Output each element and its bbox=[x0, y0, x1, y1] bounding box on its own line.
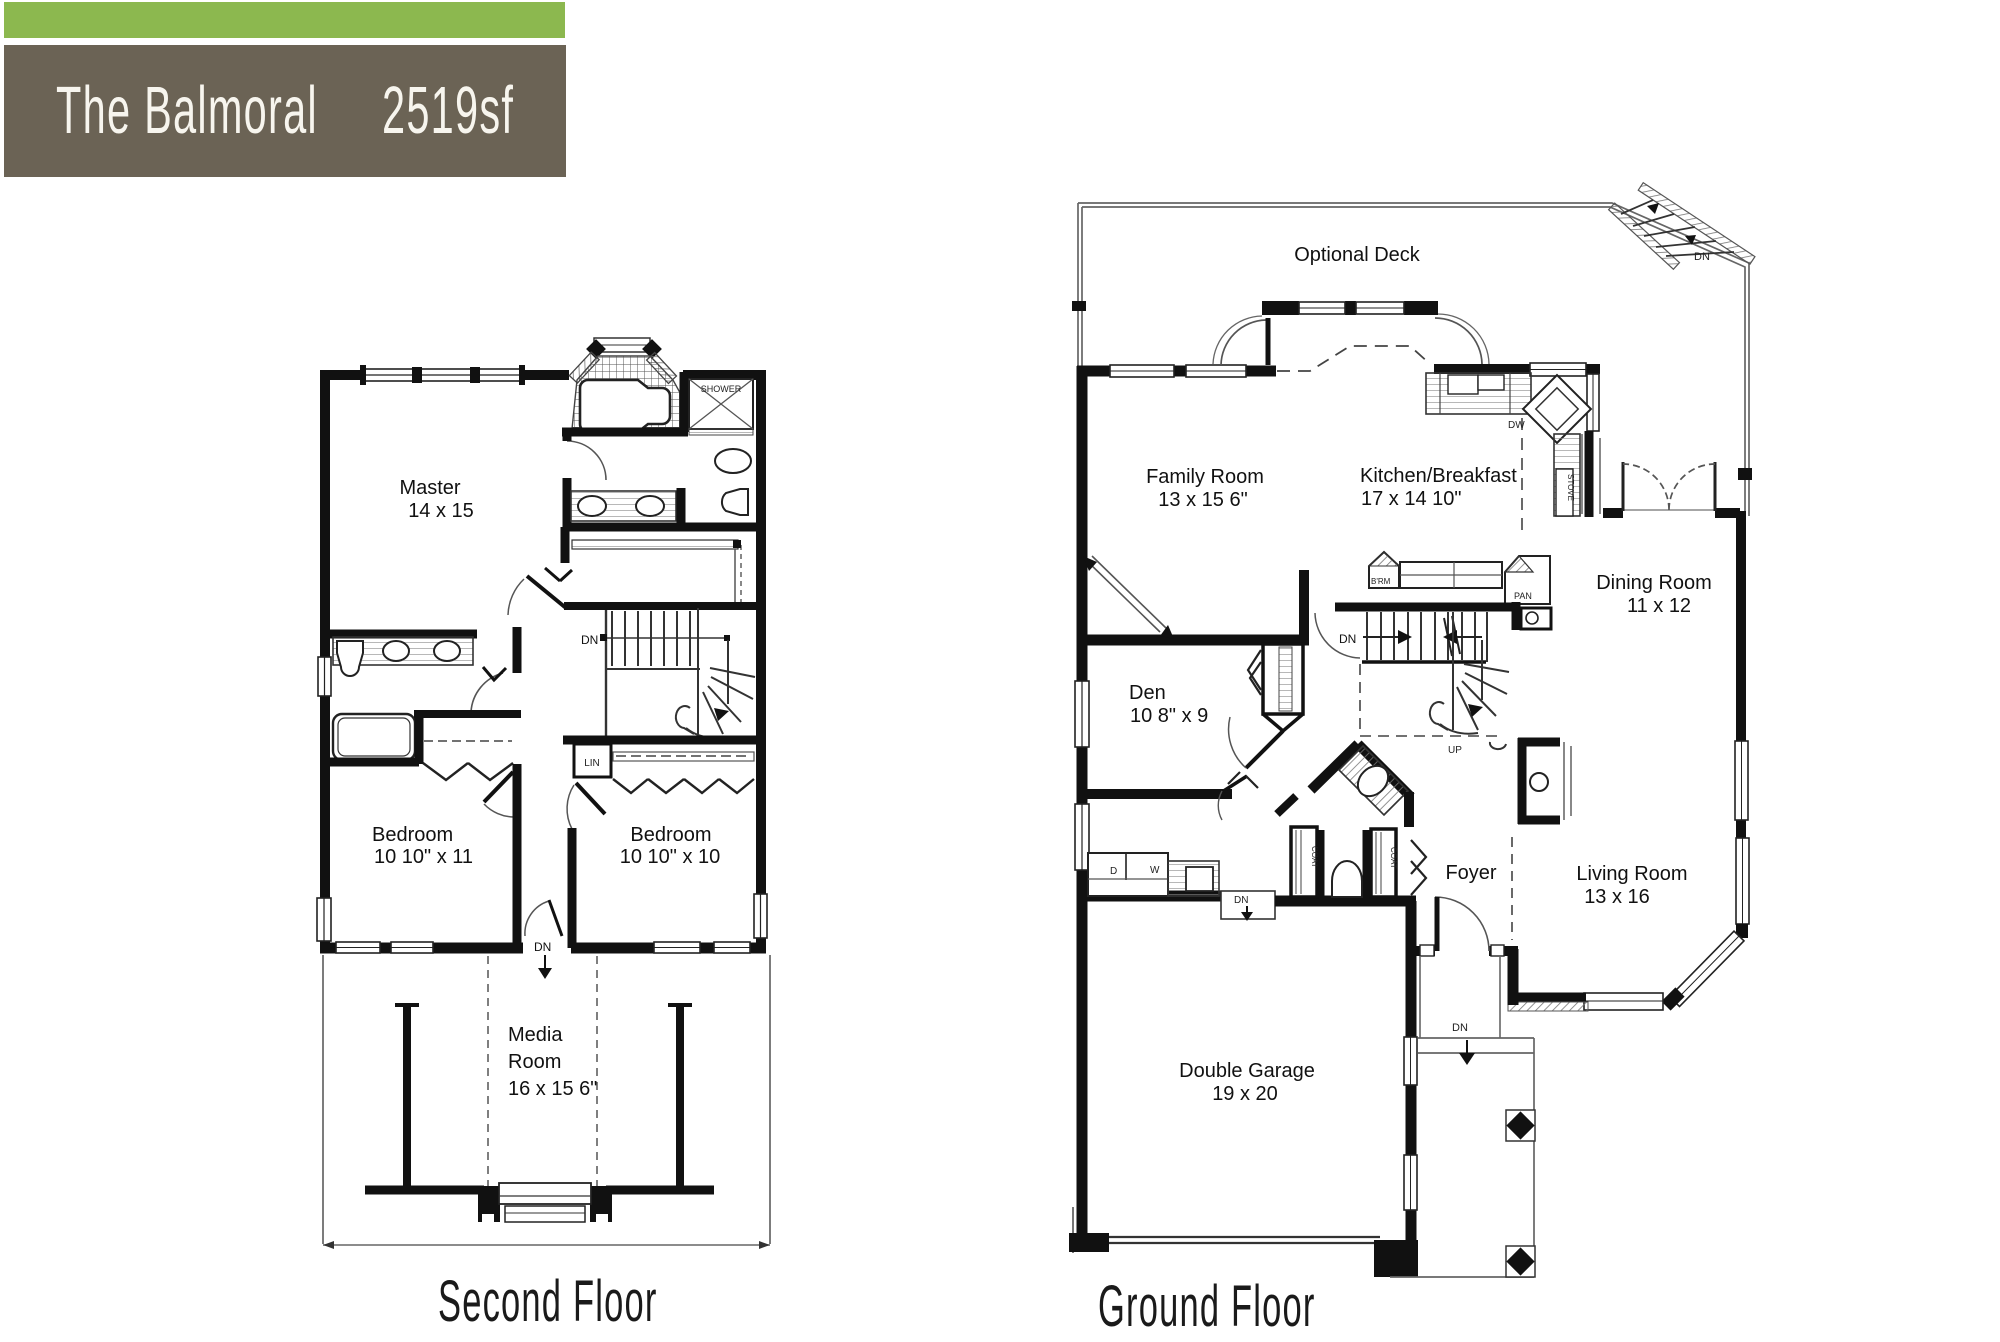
svg-text:Bedroom: Bedroom bbox=[630, 824, 711, 846]
svg-text:LIN: LIN bbox=[584, 758, 600, 769]
svg-text:Family Room: Family Room bbox=[1146, 466, 1264, 488]
svg-text:Room: Room bbox=[508, 1051, 561, 1073]
svg-text:The Balmoral: The Balmoral bbox=[56, 73, 318, 148]
svg-text:Double Garage: Double Garage bbox=[1179, 1060, 1315, 1082]
svg-text:DN: DN bbox=[1339, 632, 1356, 646]
svg-text:Media: Media bbox=[508, 1024, 563, 1046]
svg-text:B'RM: B'RM bbox=[1371, 577, 1391, 586]
svg-text:16 x 15 6": 16 x 15 6" bbox=[508, 1078, 597, 1100]
svg-text:Kitchen/Breakfast: Kitchen/Breakfast bbox=[1360, 465, 1517, 487]
svg-text:13 x 16: 13 x 16 bbox=[1584, 886, 1650, 908]
svg-text:Optional Deck: Optional Deck bbox=[1294, 244, 1421, 266]
svg-text:Dining Room: Dining Room bbox=[1596, 572, 1712, 594]
svg-text:PAN: PAN bbox=[1514, 591, 1532, 601]
svg-text:Second Floor: Second Floor bbox=[438, 1270, 658, 1334]
svg-text:STOVE: STOVE bbox=[1566, 474, 1575, 501]
svg-text:13 x 15 6": 13 x 15 6" bbox=[1158, 489, 1247, 511]
svg-text:DW: DW bbox=[1508, 420, 1525, 431]
svg-text:10 10" x 10: 10 10" x 10 bbox=[620, 846, 721, 868]
svg-text:W: W bbox=[1150, 865, 1160, 876]
svg-text:10 8" x 9: 10 8" x 9 bbox=[1130, 705, 1208, 727]
svg-text:10 10" x 11: 10 10" x 11 bbox=[374, 846, 473, 868]
svg-text:17 x 14 10": 17 x 14 10" bbox=[1361, 488, 1462, 510]
svg-text:UP: UP bbox=[1448, 745, 1462, 756]
svg-text:DN: DN bbox=[581, 633, 598, 647]
svg-text:Den: Den bbox=[1129, 682, 1166, 704]
svg-text:14 x 15: 14 x 15 bbox=[408, 500, 474, 522]
svg-text:2519sf: 2519sf bbox=[382, 73, 514, 148]
svg-text:19 x 20: 19 x 20 bbox=[1212, 1083, 1278, 1105]
svg-text:DN: DN bbox=[534, 940, 551, 954]
svg-text:D: D bbox=[1110, 866, 1117, 877]
svg-text:DN: DN bbox=[1452, 1022, 1468, 1034]
svg-text:SHOWER: SHOWER bbox=[701, 384, 742, 394]
svg-text:DN: DN bbox=[1694, 251, 1710, 263]
svg-text:Ground Floor: Ground Floor bbox=[1098, 1275, 1316, 1339]
svg-text:Master: Master bbox=[399, 477, 460, 499]
svg-text:Living Room: Living Room bbox=[1576, 863, 1687, 885]
svg-text:11 x 12: 11 x 12 bbox=[1627, 595, 1691, 617]
svg-text:COAT: COAT bbox=[1389, 847, 1398, 869]
svg-text:Foyer: Foyer bbox=[1445, 862, 1496, 884]
svg-text:DN: DN bbox=[1234, 895, 1248, 906]
svg-text:Bedroom: Bedroom bbox=[372, 824, 453, 846]
